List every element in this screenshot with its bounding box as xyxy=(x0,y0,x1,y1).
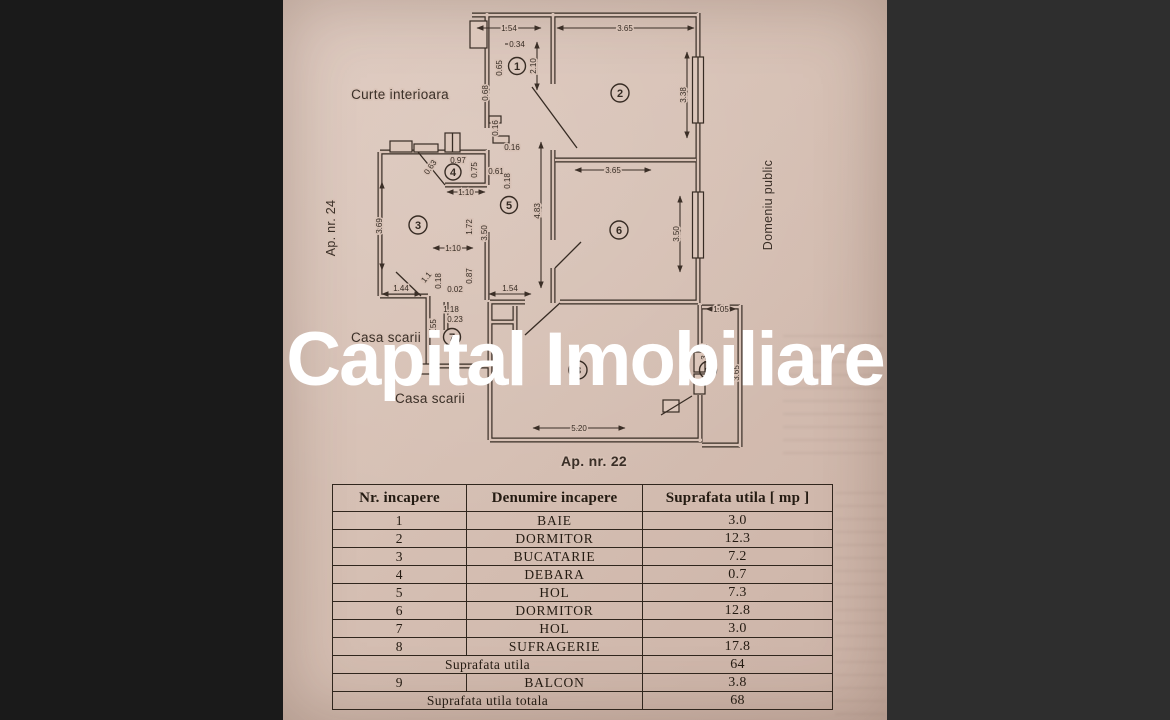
cell-nr: 8 xyxy=(333,638,467,656)
cell-denumire: BAIE xyxy=(467,512,643,530)
dim-label: 2.10 xyxy=(529,58,538,74)
room-number-label: 4 xyxy=(450,167,457,179)
dim-label: 5.20 xyxy=(571,424,587,433)
cell-denumire: BALCON xyxy=(467,674,643,692)
room-number-2: 2 xyxy=(611,84,629,102)
dim-label: 1.1 xyxy=(419,270,433,285)
table-subtotal-row: Suprafata utila 64 xyxy=(333,656,833,674)
letterbox-right xyxy=(887,0,1170,720)
table-row: 5 HOL 7.3 xyxy=(333,584,833,602)
room-number-1: 1 xyxy=(509,58,526,75)
room-number-label: 2 xyxy=(617,88,623,100)
cell-nr: 1 xyxy=(333,512,467,530)
cell-nr: 5 xyxy=(333,584,467,602)
dim-label: 0.02 xyxy=(447,285,463,294)
dim-label: 0.68 xyxy=(481,85,490,101)
dim-label: 1.54 xyxy=(501,24,517,33)
area-table-grid: Nr. incapere Denumire incapere Suprafata… xyxy=(332,484,833,710)
cell-nr: 4 xyxy=(333,566,467,584)
cell-denumire: DORMITOR xyxy=(467,602,643,620)
table-row: 6 DORMITOR 12.8 xyxy=(333,602,833,620)
table-row: 1 BAIE 3.0 xyxy=(333,512,833,530)
cell-suprafata: 12.8 xyxy=(643,602,833,620)
label-curte-interioara: Curte interioara xyxy=(351,87,449,102)
dim-label: 3.65 xyxy=(617,24,633,33)
header-nr-incapere: Nr. incapere xyxy=(333,485,467,512)
room-number-label: 6 xyxy=(616,225,622,237)
dim-label: 3.69 xyxy=(375,218,384,234)
dim-label: 0.16 xyxy=(491,120,500,136)
table-row: 8 SUFRAGERIE 17.8 xyxy=(333,638,833,656)
cell-denumire: HOL xyxy=(467,584,643,602)
cell-nr: 6 xyxy=(333,602,467,620)
room-number-6: 6 xyxy=(610,221,628,239)
dim-label: 3.65 xyxy=(605,166,621,175)
cell-suprafata: 3.0 xyxy=(643,512,833,530)
cell-suprafata: 7.2 xyxy=(643,548,833,566)
table-row-balcon: 9 BALCON 3.8 xyxy=(333,674,833,692)
dim-label: 1.05 xyxy=(713,305,729,314)
dim-label: 1.10 xyxy=(458,188,474,197)
table-total-row: Suprafata utila totala 68 xyxy=(333,692,833,710)
bleed-through-texture xyxy=(835,492,885,717)
table-row: 7 HOL 3.0 xyxy=(333,620,833,638)
dim-label: 3.50 xyxy=(480,225,489,241)
room-number-3: 3 xyxy=(409,216,427,234)
dim-label: 0.87 xyxy=(465,268,474,284)
table-row: 3 BUCATARIE 7.2 xyxy=(333,548,833,566)
cell-denumire: HOL xyxy=(467,620,643,638)
label-ap-nr-24: Ap. nr. 24 xyxy=(324,200,338,257)
dim-label: 0.18 xyxy=(503,173,512,189)
dim-label: 0.18 xyxy=(434,273,443,289)
cell-suprafata: 12.3 xyxy=(643,530,833,548)
room-number-5: 5 xyxy=(501,197,518,214)
table-row: 2 DORMITOR 12.3 xyxy=(333,530,833,548)
total-value: 68 xyxy=(643,692,833,710)
watermark-capital-imobiliare: Capital Imobiliare xyxy=(279,322,891,398)
room-number-label: 5 xyxy=(506,200,512,212)
room-number-label: 3 xyxy=(415,220,421,232)
subtotal-label: Suprafata utila xyxy=(333,656,643,674)
cell-nr: 9 xyxy=(333,674,467,692)
cell-nr: 7 xyxy=(333,620,467,638)
dim-label: 4.83 xyxy=(533,203,542,219)
cell-suprafata: 3.8 xyxy=(643,674,833,692)
letterbox-left xyxy=(0,0,283,720)
cell-denumire: DORMITOR xyxy=(467,530,643,548)
floorplan-drawing: 1.54 3.65 0.34 0.65 2.10 0.68 3.38 0.16 … xyxy=(283,0,887,484)
subtotal-value: 64 xyxy=(643,656,833,674)
dim-label: 3.38 xyxy=(679,87,688,103)
dim-label: 0.34 xyxy=(509,40,525,49)
dim-label: 1.44 xyxy=(393,284,409,293)
dim-label: 1.18 xyxy=(443,305,459,314)
dim-label: 0.65 xyxy=(495,60,504,76)
cell-denumire: BUCATARIE xyxy=(467,548,643,566)
header-denumire-incapere: Denumire incapere xyxy=(467,485,643,512)
dim-label: 0.61 xyxy=(488,167,504,176)
cell-suprafata: 0.7 xyxy=(643,566,833,584)
room-number-4: 4 xyxy=(445,164,461,180)
dim-label: 0.16 xyxy=(504,143,520,152)
cell-suprafata: 17.8 xyxy=(643,638,833,656)
dim-label: 0.75 xyxy=(470,162,479,178)
total-label: Suprafata utila totala xyxy=(333,692,643,710)
room-number-label: 1 xyxy=(514,61,520,73)
dim-label: 1.54 xyxy=(502,284,518,293)
label-domeniu-public: Domeniu public xyxy=(761,160,775,250)
cell-denumire: DEBARA xyxy=(467,566,643,584)
cell-suprafata: 3.0 xyxy=(643,620,833,638)
dim-label: 1.10 xyxy=(445,244,461,253)
area-table: Nr. incapere Denumire incapere Suprafata… xyxy=(332,484,832,710)
cell-denumire: SUFRAGERIE xyxy=(467,638,643,656)
cell-nr: 2 xyxy=(333,530,467,548)
scanned-floorplan-page: 1.54 3.65 0.34 0.65 2.10 0.68 3.38 0.16 … xyxy=(283,0,887,720)
cell-suprafata: 7.3 xyxy=(643,584,833,602)
dim-label: 3.50 xyxy=(672,226,681,242)
table-row: 4 DEBARA 0.7 xyxy=(333,566,833,584)
dim-label: 1.72 xyxy=(465,219,474,235)
cell-nr: 3 xyxy=(333,548,467,566)
table-header-row: Nr. incapere Denumire incapere Suprafata… xyxy=(333,485,833,512)
header-suprafata-utila: Suprafata utila [ mp ] xyxy=(643,485,833,512)
label-ap-nr-22: Ap. nr. 22 xyxy=(561,453,627,469)
